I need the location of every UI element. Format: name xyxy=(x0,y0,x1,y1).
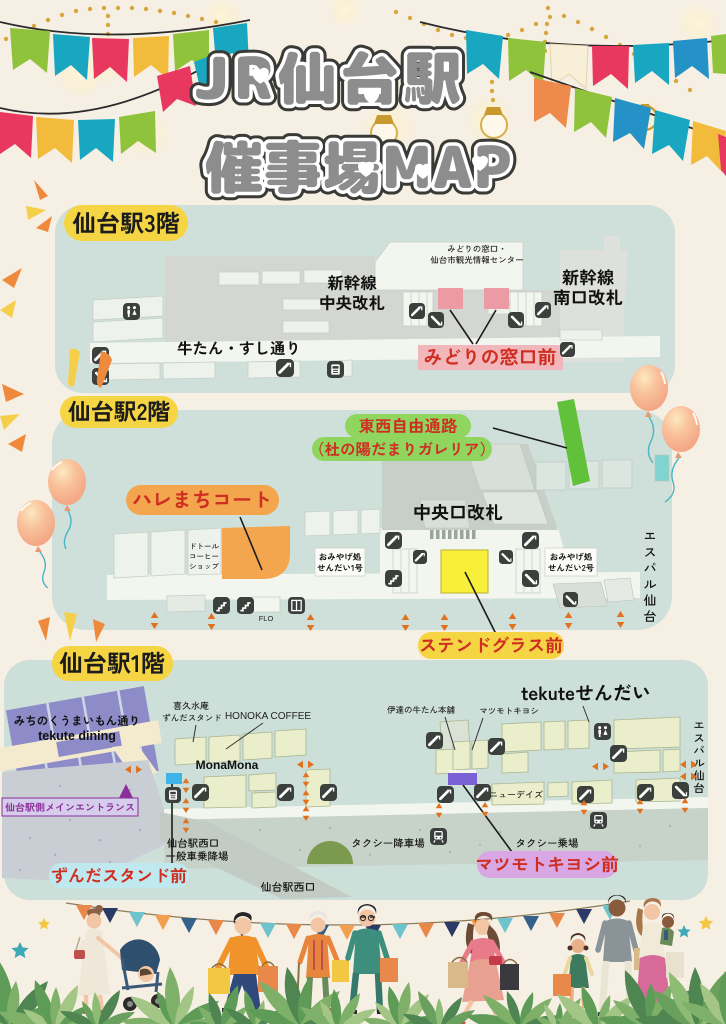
svg-text:HONOKA COFFEE: HONOKA COFFEE xyxy=(225,711,311,722)
svg-text:MonaMona: MonaMona xyxy=(196,758,259,772)
svg-text:FLO: FLO xyxy=(259,614,274,623)
svg-text:tekute dining: tekute dining xyxy=(38,729,116,743)
